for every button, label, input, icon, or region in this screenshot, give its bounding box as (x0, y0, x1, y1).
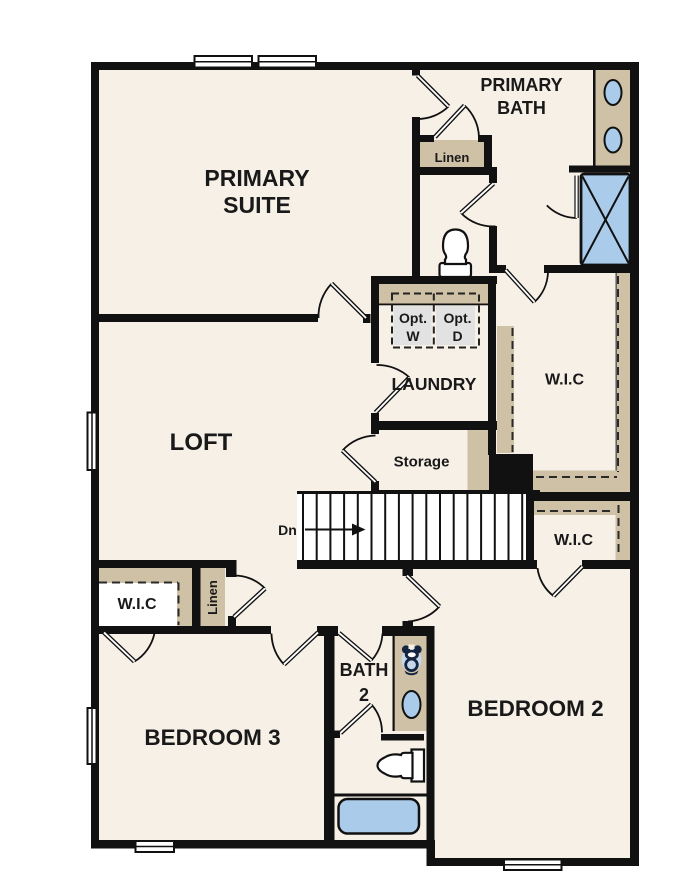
svg-text:Linen: Linen (205, 580, 220, 615)
svg-text:Opt.: Opt. (444, 310, 472, 326)
svg-text:2: 2 (359, 685, 369, 705)
svg-text:BEDROOM 2: BEDROOM 2 (467, 696, 603, 721)
svg-text:LAUNDRY: LAUNDRY (392, 374, 477, 394)
svg-text:W: W (406, 328, 420, 344)
svg-text:LOFT: LOFT (170, 429, 233, 456)
svg-text:Linen: Linen (435, 150, 470, 165)
svg-text:PRIMARY: PRIMARY (480, 75, 562, 95)
svg-text:Storage: Storage (394, 454, 450, 471)
svg-text:PRIMARY: PRIMARY (204, 165, 309, 191)
svg-text:Dn: Dn (278, 522, 297, 538)
svg-text:BATH: BATH (497, 98, 546, 118)
svg-text:W.I.C: W.I.C (554, 532, 594, 549)
svg-text:Opt.: Opt. (399, 310, 427, 326)
svg-text:W.I.C: W.I.C (545, 372, 585, 389)
svg-text:BATH: BATH (340, 660, 389, 680)
svg-text:D: D (452, 328, 462, 344)
svg-text:BEDROOM 3: BEDROOM 3 (144, 725, 280, 750)
svg-text:W.I.C: W.I.C (117, 596, 157, 613)
svg-text:SUITE: SUITE (223, 192, 291, 218)
